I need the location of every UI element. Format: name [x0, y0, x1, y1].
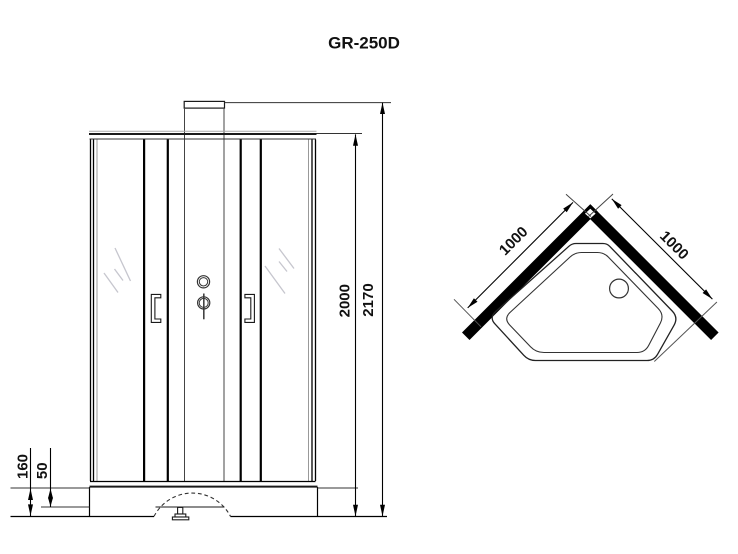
svg-text:2170: 2170 — [360, 283, 377, 316]
svg-text:GR-250D: GR-250D — [328, 34, 400, 53]
svg-text:50: 50 — [34, 462, 51, 479]
svg-text:160: 160 — [15, 454, 32, 479]
svg-text:2000: 2000 — [337, 284, 354, 317]
